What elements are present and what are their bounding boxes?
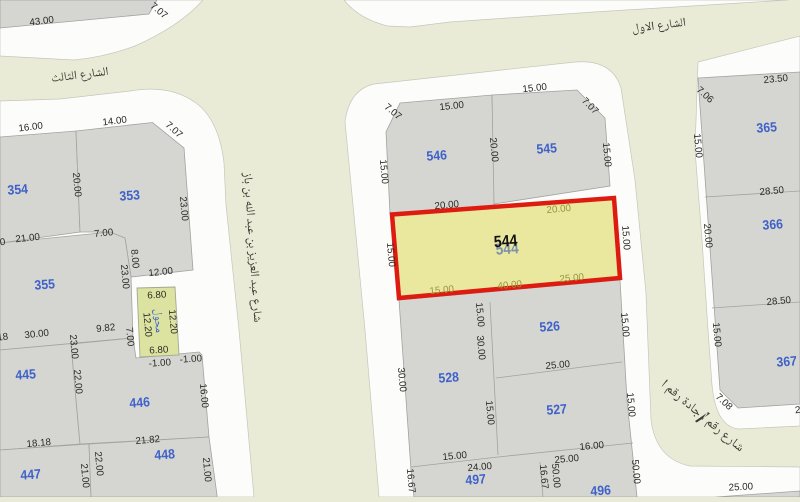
svg-text:25.00: 25.00 [559,272,585,285]
svg-text:18.18: 18.18 [26,437,52,450]
svg-text:354: 354 [7,181,29,197]
svg-text:22.00: 22.00 [92,451,105,477]
svg-text:15.00: 15.00 [618,312,631,338]
svg-text:6.80: 6.80 [147,289,167,301]
svg-text:448: 448 [154,446,176,462]
svg-text:365: 365 [756,119,778,135]
svg-text:445: 445 [15,366,37,382]
svg-text:15.00: 15.00 [442,450,468,463]
svg-text:366: 366 [762,216,784,232]
svg-text:20.00: 20.00 [701,223,714,249]
svg-text:23.00: 23.00 [67,334,80,360]
svg-text:50.00: 50.00 [629,459,642,485]
svg-text:23.00: 23.00 [118,264,131,290]
svg-text:20.00: 20.00 [546,203,572,216]
svg-text:367: 367 [776,353,797,369]
svg-text:16.00: 16.00 [579,440,605,453]
svg-text:528: 528 [438,369,460,385]
svg-text:23.00: 23.00 [177,196,190,222]
svg-text:50.00: 50.00 [549,463,562,489]
svg-text:-1.00: -1.00 [179,353,203,366]
svg-text:497: 497 [465,471,486,487]
svg-text:25.00: 25.00 [545,359,571,372]
svg-text:12.20: 12.20 [140,312,153,338]
svg-text:446: 446 [129,394,151,410]
svg-text:7.00: 7.00 [94,227,115,240]
svg-text:15.00: 15.00 [619,225,632,251]
svg-text:22.00: 22.00 [71,369,84,395]
svg-text:25.00: 25.00 [728,481,754,493]
svg-text:15.00: 15.00 [600,142,613,168]
svg-text:-1.00: -1.00 [148,357,172,370]
svg-text:28.50: 28.50 [766,295,792,308]
svg-text:30.00: 30.00 [395,367,408,393]
svg-text:496: 496 [590,482,612,497]
svg-text:21.82: 21.82 [135,434,160,447]
svg-text:355: 355 [34,276,56,292]
svg-text:9.82: 9.82 [96,322,116,335]
svg-text:15.00: 15.00 [624,392,637,418]
svg-text:545: 545 [536,140,558,156]
svg-text:20.00: 20.00 [487,137,500,163]
svg-text:16.67: 16.67 [537,464,550,489]
svg-text:23.50: 23.50 [763,73,789,86]
svg-text:28.50: 28.50 [759,185,785,198]
svg-text:21.00: 21.00 [78,463,91,489]
svg-text:526: 526 [539,318,561,334]
svg-text:15.00: 15.00 [384,242,397,268]
svg-text:15.00: 15.00 [473,302,486,328]
svg-text:12.20: 12.20 [166,309,179,335]
svg-text:7.00: 7.00 [123,327,136,348]
svg-text:544: 544 [493,232,518,252]
svg-text:15.00: 15.00 [483,400,496,426]
svg-text:15.00: 15.00 [710,322,723,348]
svg-text:40.00: 40.00 [497,279,523,292]
svg-text:20.00: 20.00 [70,172,83,198]
svg-text:15.00: 15.00 [429,284,455,297]
svg-text:15.00: 15.00 [691,133,704,159]
svg-text:447: 447 [20,466,41,482]
svg-text:21.00: 21.00 [200,457,213,483]
svg-text:20.00: 20.00 [434,199,460,212]
svg-text:30.00: 30.00 [474,335,487,361]
svg-text:16.67: 16.67 [404,468,417,493]
svg-text:6.80: 6.80 [149,344,169,356]
svg-text:2: 2 [795,405,800,416]
svg-text:353: 353 [119,187,141,203]
svg-text:15.00: 15.00 [377,159,390,185]
svg-text:546: 546 [426,147,448,163]
svg-text:527: 527 [546,401,567,417]
svg-text:8.00: 8.00 [128,249,141,270]
svg-text:16.00: 16.00 [197,383,210,409]
